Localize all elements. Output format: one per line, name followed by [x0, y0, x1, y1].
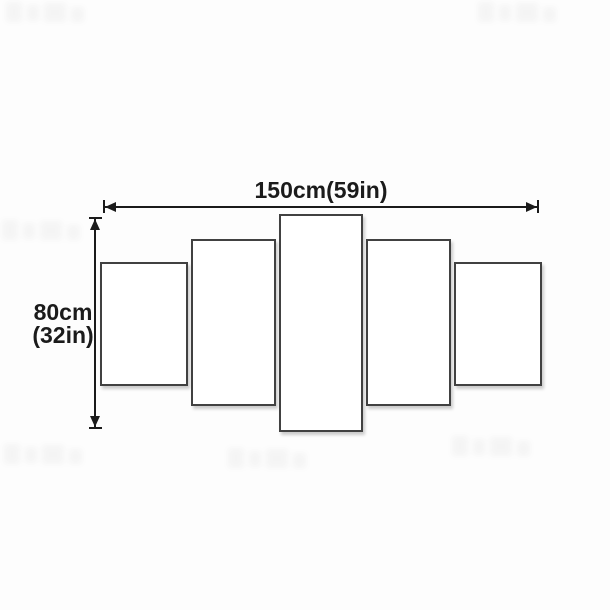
height-dimension-label-cm: 80cm — [16, 301, 110, 324]
watermark — [6, 2, 84, 22]
height-dimension-label: 80cm (32in) — [16, 301, 110, 347]
arrow-down-icon — [90, 416, 100, 427]
watermark — [452, 436, 530, 456]
canvas-panel-3-center — [279, 214, 363, 432]
watermark — [4, 444, 82, 464]
arrow-up-icon — [90, 219, 100, 230]
watermark — [478, 2, 556, 22]
canvas-panel-4 — [366, 239, 451, 406]
canvas-panel-1 — [100, 262, 188, 386]
watermark — [2, 220, 80, 240]
canvas-panel-5 — [454, 262, 542, 386]
canvas-panel-2 — [191, 239, 276, 406]
canvas-size-diagram: 150cm(59in) 80cm (32in) — [0, 0, 610, 610]
height-dimension-label-in: (32in) — [16, 324, 110, 347]
height-dimension-tick-bottom — [89, 427, 102, 429]
width-dimension-label: 150cm(59in) — [104, 177, 538, 204]
width-dimension-line — [104, 206, 538, 208]
watermark — [228, 448, 306, 468]
